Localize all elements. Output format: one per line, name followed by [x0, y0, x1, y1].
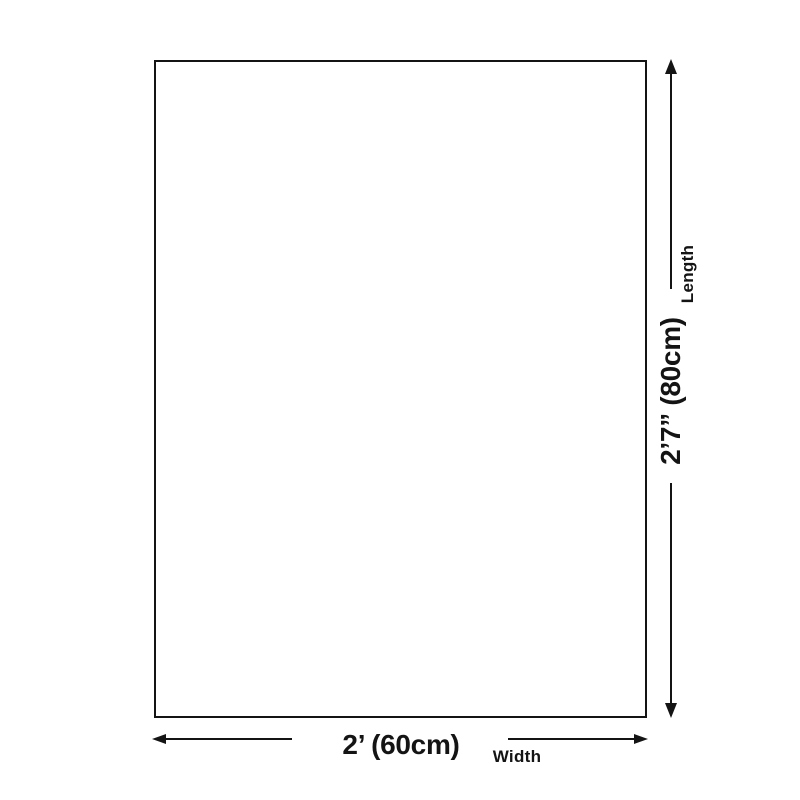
product-outline-rectangle: [154, 60, 647, 718]
arrow-right-icon: [634, 734, 648, 744]
width-value-label: 2’ (60cm): [342, 729, 459, 761]
dimension-diagram: Length 2’7” (80cm) 2’ (60cm) Width: [0, 0, 800, 800]
width-dimension-line-right: [508, 738, 634, 740]
length-dimension-line-bottom: [670, 483, 672, 704]
arrow-down-icon: [665, 703, 677, 718]
length-dimension-line-top: [670, 72, 672, 289]
width-axis-label: Width: [493, 747, 542, 767]
width-dimension-line-left: [165, 738, 292, 740]
length-value-label: 2’7” (80cm): [655, 317, 687, 465]
arrow-left-icon: [152, 734, 166, 744]
length-axis-label: Length: [678, 245, 698, 303]
